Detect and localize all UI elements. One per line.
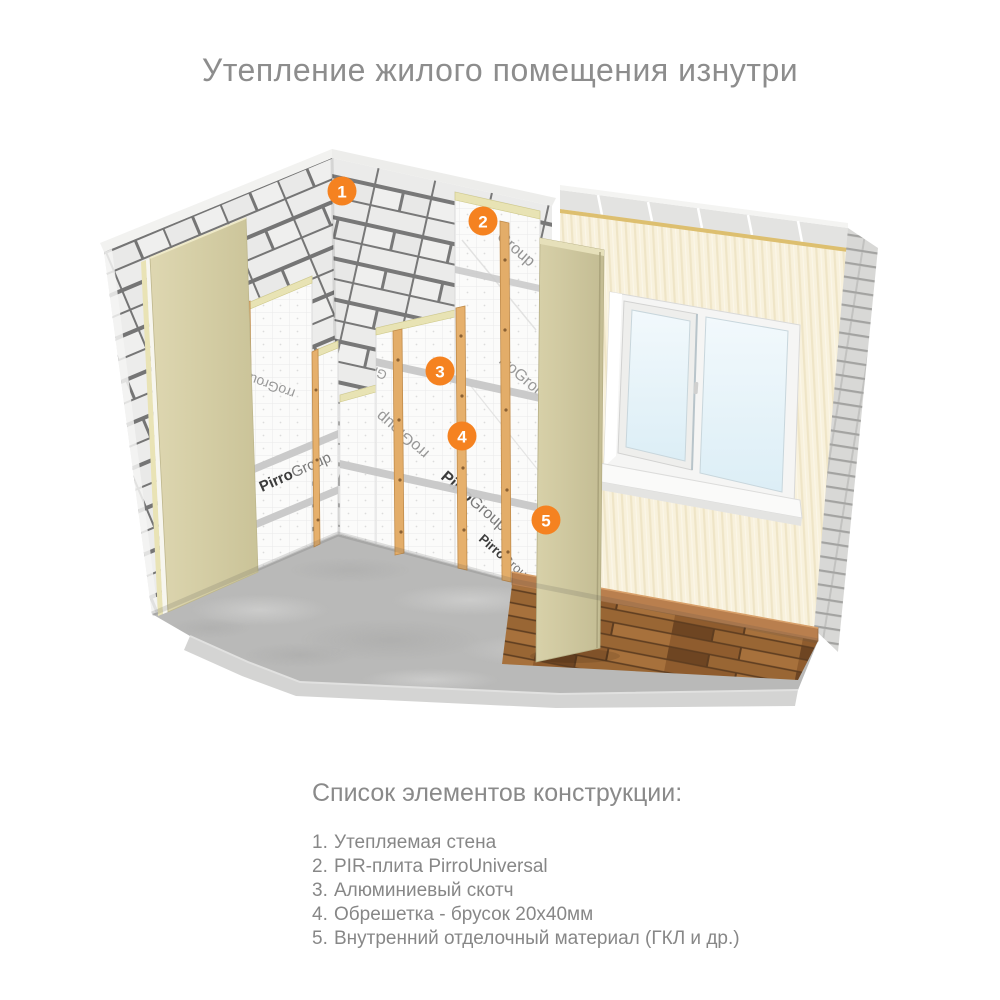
legend-item: 1.Утепляемая стена [312, 831, 740, 855]
finish-panel-left [141, 218, 258, 616]
legend-item-number: 5. [312, 927, 334, 951]
svg-text:1: 1 [337, 183, 346, 202]
legend-item-label: PIR-плита PirroUniversal [334, 856, 548, 877]
legend-item-label: Обрешетка - брусок 20х40мм [334, 904, 593, 925]
insulation-panel [250, 276, 312, 572]
marker-5: 5 [532, 506, 561, 535]
marker-4: 4 [448, 422, 477, 451]
batten [500, 221, 511, 582]
legend-item-label: Утепляемая стена [334, 832, 496, 853]
window-glass-left [626, 310, 690, 461]
svg-text:5: 5 [541, 512, 550, 531]
svg-text:2: 2 [478, 213, 487, 232]
legend-heading: Список элементов конструкции: [312, 778, 740, 808]
marker-1: 1 [328, 177, 357, 206]
legend-item: 2.PIR-плита PirroUniversal [312, 855, 740, 879]
legend-item: 3.Алюминиевый скотч [312, 879, 740, 903]
legend-item-number: 3. [312, 879, 334, 903]
legend-item-label: Алюминиевый скотч [334, 880, 514, 901]
marker-2: 2 [469, 207, 498, 236]
legend: Список элементов конструкции: 1.Утепляем… [312, 778, 740, 951]
window-glass-right [700, 317, 788, 492]
gypsum-board [150, 218, 258, 612]
legend-list: 1.Утепляемая стена 2.PIR-плита PirroUniv… [312, 831, 740, 951]
legend-item: 5.Внутренний отделочный материал (ГКЛ и … [312, 927, 740, 951]
window [589, 292, 802, 526]
batten [393, 329, 404, 555]
svg-text:4: 4 [457, 428, 467, 447]
legend-item-number: 1. [312, 831, 334, 855]
page: Утепление жилого помещения изнутри [0, 0, 1000, 1000]
marker-3: 3 [426, 357, 455, 386]
legend-item-label: Внутренний отделочный материал (ГКЛ и др… [334, 928, 740, 949]
svg-text:3: 3 [435, 363, 444, 382]
legend-item-number: 2. [312, 855, 334, 879]
legend-item-number: 4. [312, 903, 334, 927]
legend-item: 4.Обрешетка - брусок 20х40мм [312, 903, 740, 927]
